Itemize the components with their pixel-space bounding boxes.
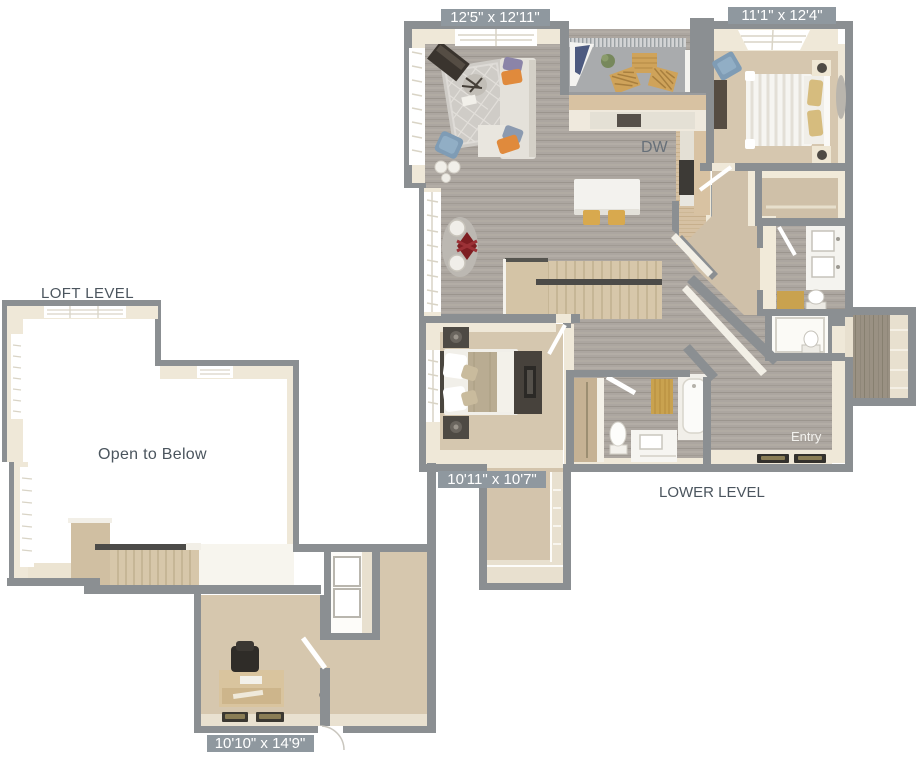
svg-text:LOFT LEVEL: LOFT LEVEL — [41, 285, 134, 302]
svg-text:12'5" x 12'11": 12'5" x 12'11" — [450, 9, 540, 26]
svg-text:10'10" x 14'9": 10'10" x 14'9" — [215, 735, 306, 752]
svg-text:DW: DW — [641, 139, 669, 156]
svg-text:LOWER LEVEL: LOWER LEVEL — [659, 484, 765, 501]
svg-text:Entry: Entry — [791, 429, 822, 444]
svg-text:Open to Below: Open to Below — [98, 446, 207, 463]
svg-text:11'1" x 12'4": 11'1" x 12'4" — [741, 7, 822, 24]
svg-text:10'11" x 10'7": 10'11" x 10'7" — [447, 471, 537, 488]
